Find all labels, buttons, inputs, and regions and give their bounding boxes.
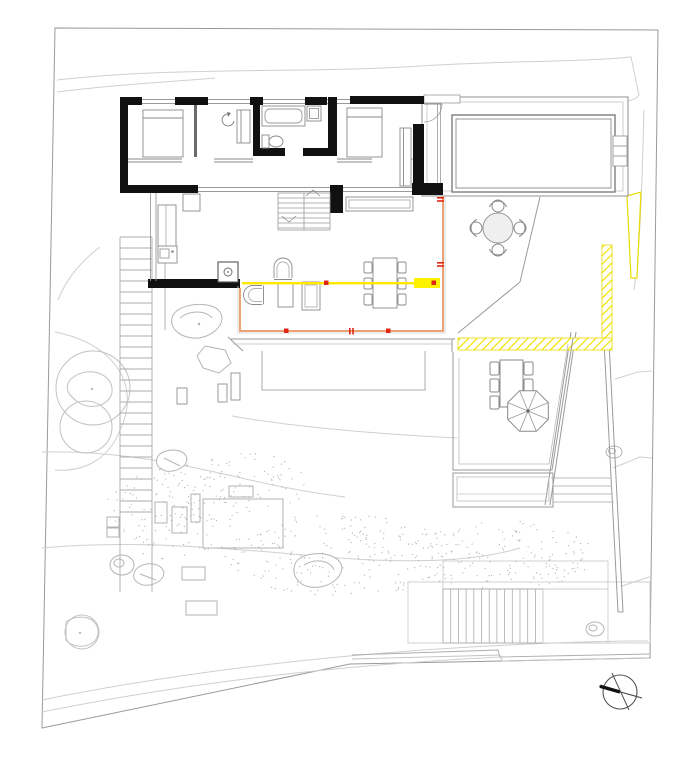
kitchen-island (218, 262, 238, 282)
dining-chair (398, 294, 406, 305)
pool-step (613, 136, 627, 146)
planter-box (453, 473, 553, 507)
terrace-planters (177, 373, 240, 404)
wardrobe (400, 128, 411, 186)
section-line (242, 278, 440, 288)
chair (490, 244, 507, 256)
steps-between-walls (551, 478, 614, 502)
pool-step (613, 156, 627, 166)
chair (514, 220, 526, 237)
kitchen (158, 194, 238, 282)
toilet (262, 135, 283, 148)
retaining-wall-east (604, 341, 623, 612)
highlight-block (414, 278, 440, 288)
north-arrow-icon (599, 673, 642, 710)
tree-large-west (56, 351, 130, 453)
swivel-symbol (222, 112, 234, 126)
bed (347, 108, 382, 157)
bathroom-sink (307, 106, 321, 121)
sideboard (346, 197, 413, 211)
yellow-wall-wedge (627, 192, 641, 278)
bed (143, 110, 183, 157)
gravel-band (107, 453, 589, 596)
house (120, 95, 460, 335)
chair (490, 200, 507, 212)
garden-stair-west (120, 237, 165, 592)
yellow-highlighted-retaining (458, 192, 641, 350)
site-plan-canvas (0, 0, 697, 771)
garden-structures (107, 486, 283, 615)
swimming-pool (452, 115, 627, 192)
rock (294, 554, 342, 588)
tree-southwest (65, 615, 99, 649)
terrace-parasol (453, 338, 573, 507)
pool-deck (422, 97, 628, 196)
entry-canopy (424, 95, 460, 103)
sofa (302, 282, 320, 310)
rock (172, 304, 222, 338)
glass-facade-highlight (238, 194, 445, 333)
cabinet (237, 110, 250, 143)
armchair (274, 258, 292, 280)
bathroom (262, 106, 321, 148)
kitchen-counter (158, 205, 176, 247)
dining-chair (364, 262, 372, 273)
chair (470, 220, 482, 237)
fridge (183, 194, 200, 211)
rock-angular (197, 346, 231, 373)
parasol-icon (508, 391, 549, 432)
coffee-table (278, 283, 293, 307)
dining-chair (398, 262, 406, 273)
rock (110, 555, 134, 575)
yellow-hatch-vertical (602, 245, 612, 340)
interior-stair (278, 190, 330, 230)
pool-steps (613, 136, 627, 166)
rock (134, 564, 164, 586)
round-table-set (470, 200, 526, 256)
yellow-hatch-horizontal (458, 338, 612, 350)
rock (586, 622, 604, 636)
armchair (244, 286, 264, 305)
trees (56, 351, 130, 649)
bathtub (262, 106, 305, 126)
pool-step (613, 146, 627, 156)
plan-drawing (0, 0, 697, 771)
garden-stair-south (352, 561, 650, 661)
dining-chair (364, 294, 372, 305)
